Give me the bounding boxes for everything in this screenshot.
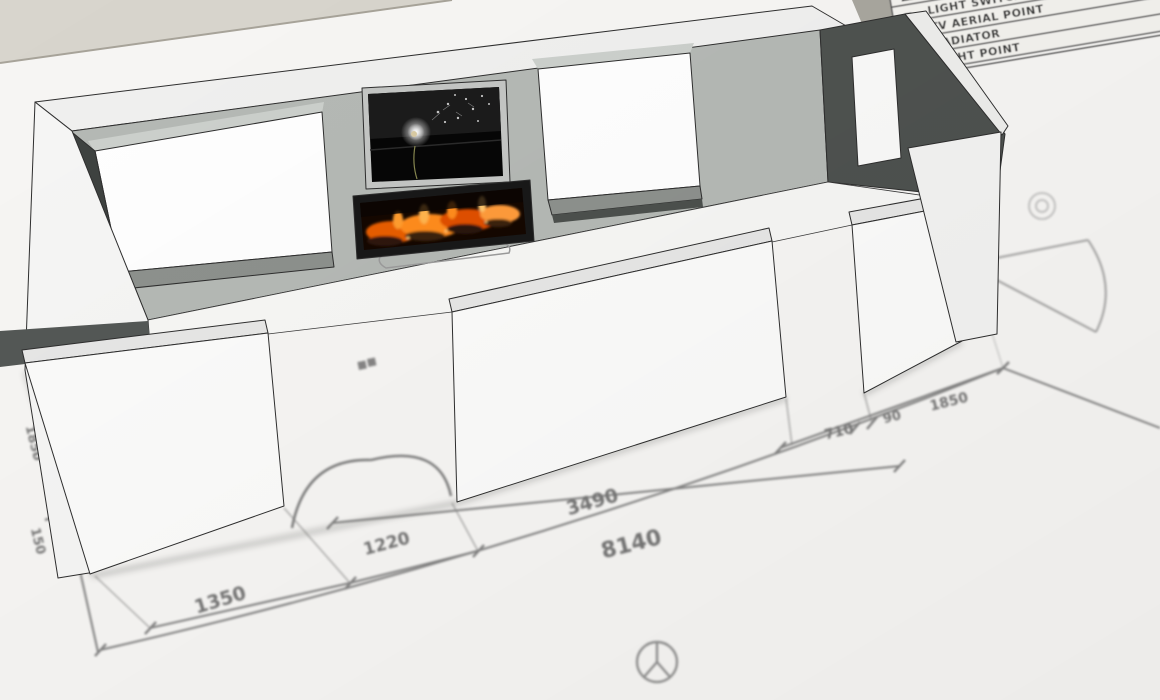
paper-sheen xyxy=(0,0,1160,700)
scene-canvas[interactable]: 8140 3490 1350 1220 710 90 1850 1850 150… xyxy=(0,0,1160,700)
viewport-3d[interactable]: 8140 3490 1350 1220 710 90 1850 1850 150… xyxy=(0,0,1160,700)
